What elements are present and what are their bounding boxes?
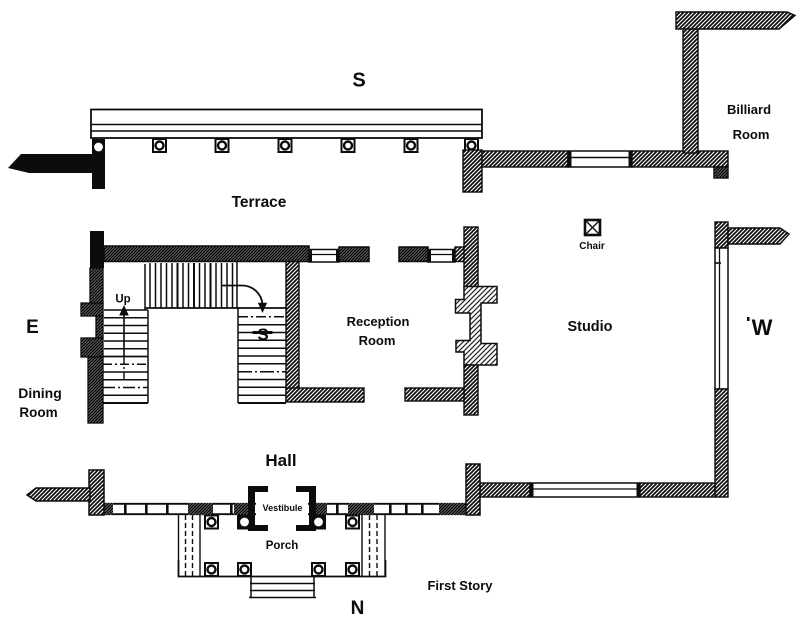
- svg-text:Room: Room: [359, 333, 396, 348]
- svg-text:W: W: [752, 315, 773, 340]
- svg-text:Porch: Porch: [266, 540, 299, 552]
- svg-text:Billiard: Billiard: [727, 102, 771, 117]
- svg-text:E: E: [26, 317, 39, 338]
- svg-text:Terrace: Terrace: [232, 194, 287, 211]
- svg-text:Chair: Chair: [579, 241, 605, 252]
- svg-text:Room: Room: [733, 127, 770, 142]
- svg-text:Room: Room: [19, 405, 57, 420]
- svg-text:First Story: First Story: [427, 578, 493, 593]
- svg-text:Vestibule: Vestibule: [263, 503, 303, 513]
- svg-text:Studio: Studio: [567, 319, 612, 335]
- svg-text:S: S: [257, 325, 268, 344]
- svg-text:Hall: Hall: [265, 451, 296, 470]
- svg-text:S: S: [352, 70, 365, 92]
- svg-text:Dining: Dining: [18, 385, 62, 401]
- svg-text:Reception: Reception: [347, 314, 410, 329]
- svg-text:N: N: [351, 598, 365, 619]
- svg-text:Up: Up: [115, 294, 130, 306]
